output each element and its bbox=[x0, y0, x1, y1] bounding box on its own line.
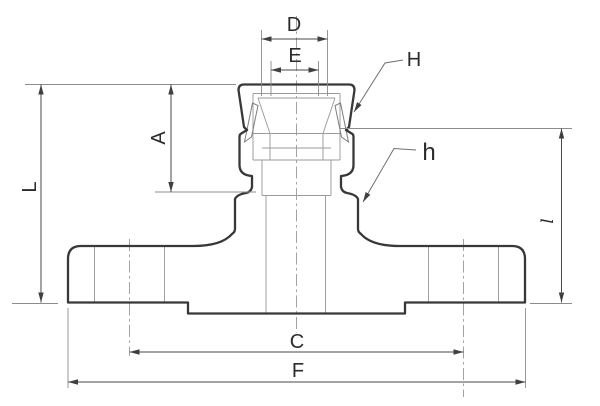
dim-label-F: F bbox=[292, 360, 304, 382]
leader-line-H bbox=[354, 60, 403, 112]
dim-label-D: D bbox=[287, 14, 301, 36]
leader-lines bbox=[354, 60, 416, 202]
dimension-labels: D E H A L h l C F bbox=[19, 14, 558, 382]
dim-label-A: A bbox=[148, 131, 170, 145]
dim-label-l: l bbox=[538, 218, 558, 223]
taper-line bbox=[258, 98, 270, 134]
cam-ear-left bbox=[245, 103, 259, 142]
leader-line-h bbox=[363, 149, 416, 203]
taper-line bbox=[323, 98, 335, 134]
dim-label-E: E bbox=[288, 45, 301, 67]
flange-technical-drawing: D E H A L h l C F bbox=[0, 0, 600, 406]
dim-label-H: H bbox=[407, 49, 421, 71]
dim-label-h: h bbox=[422, 139, 435, 166]
cam-ear-right bbox=[335, 103, 349, 142]
drawing-canvas: D E H A L h l C F bbox=[0, 0, 600, 406]
dim-label-L: L bbox=[19, 181, 41, 192]
dim-label-C: C bbox=[290, 331, 304, 353]
